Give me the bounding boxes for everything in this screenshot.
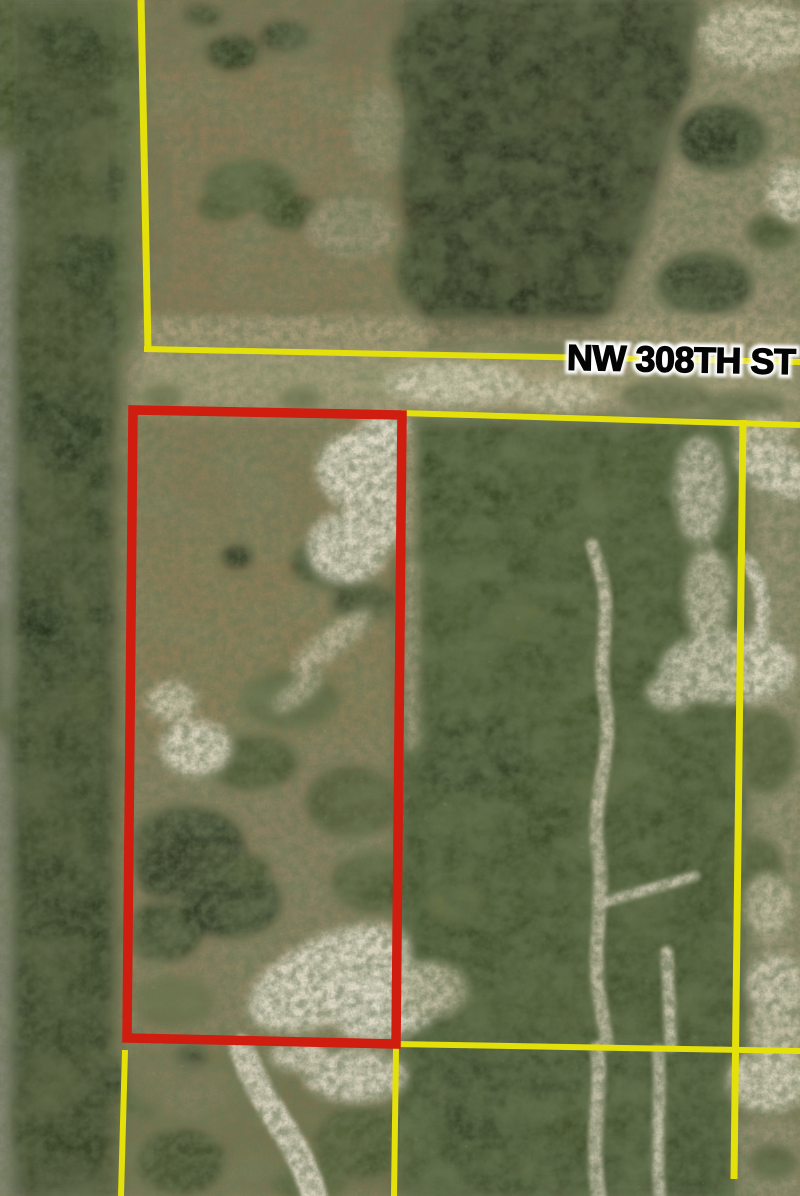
svg-text:NW 308TH ST: NW 308TH ST	[567, 337, 797, 382]
